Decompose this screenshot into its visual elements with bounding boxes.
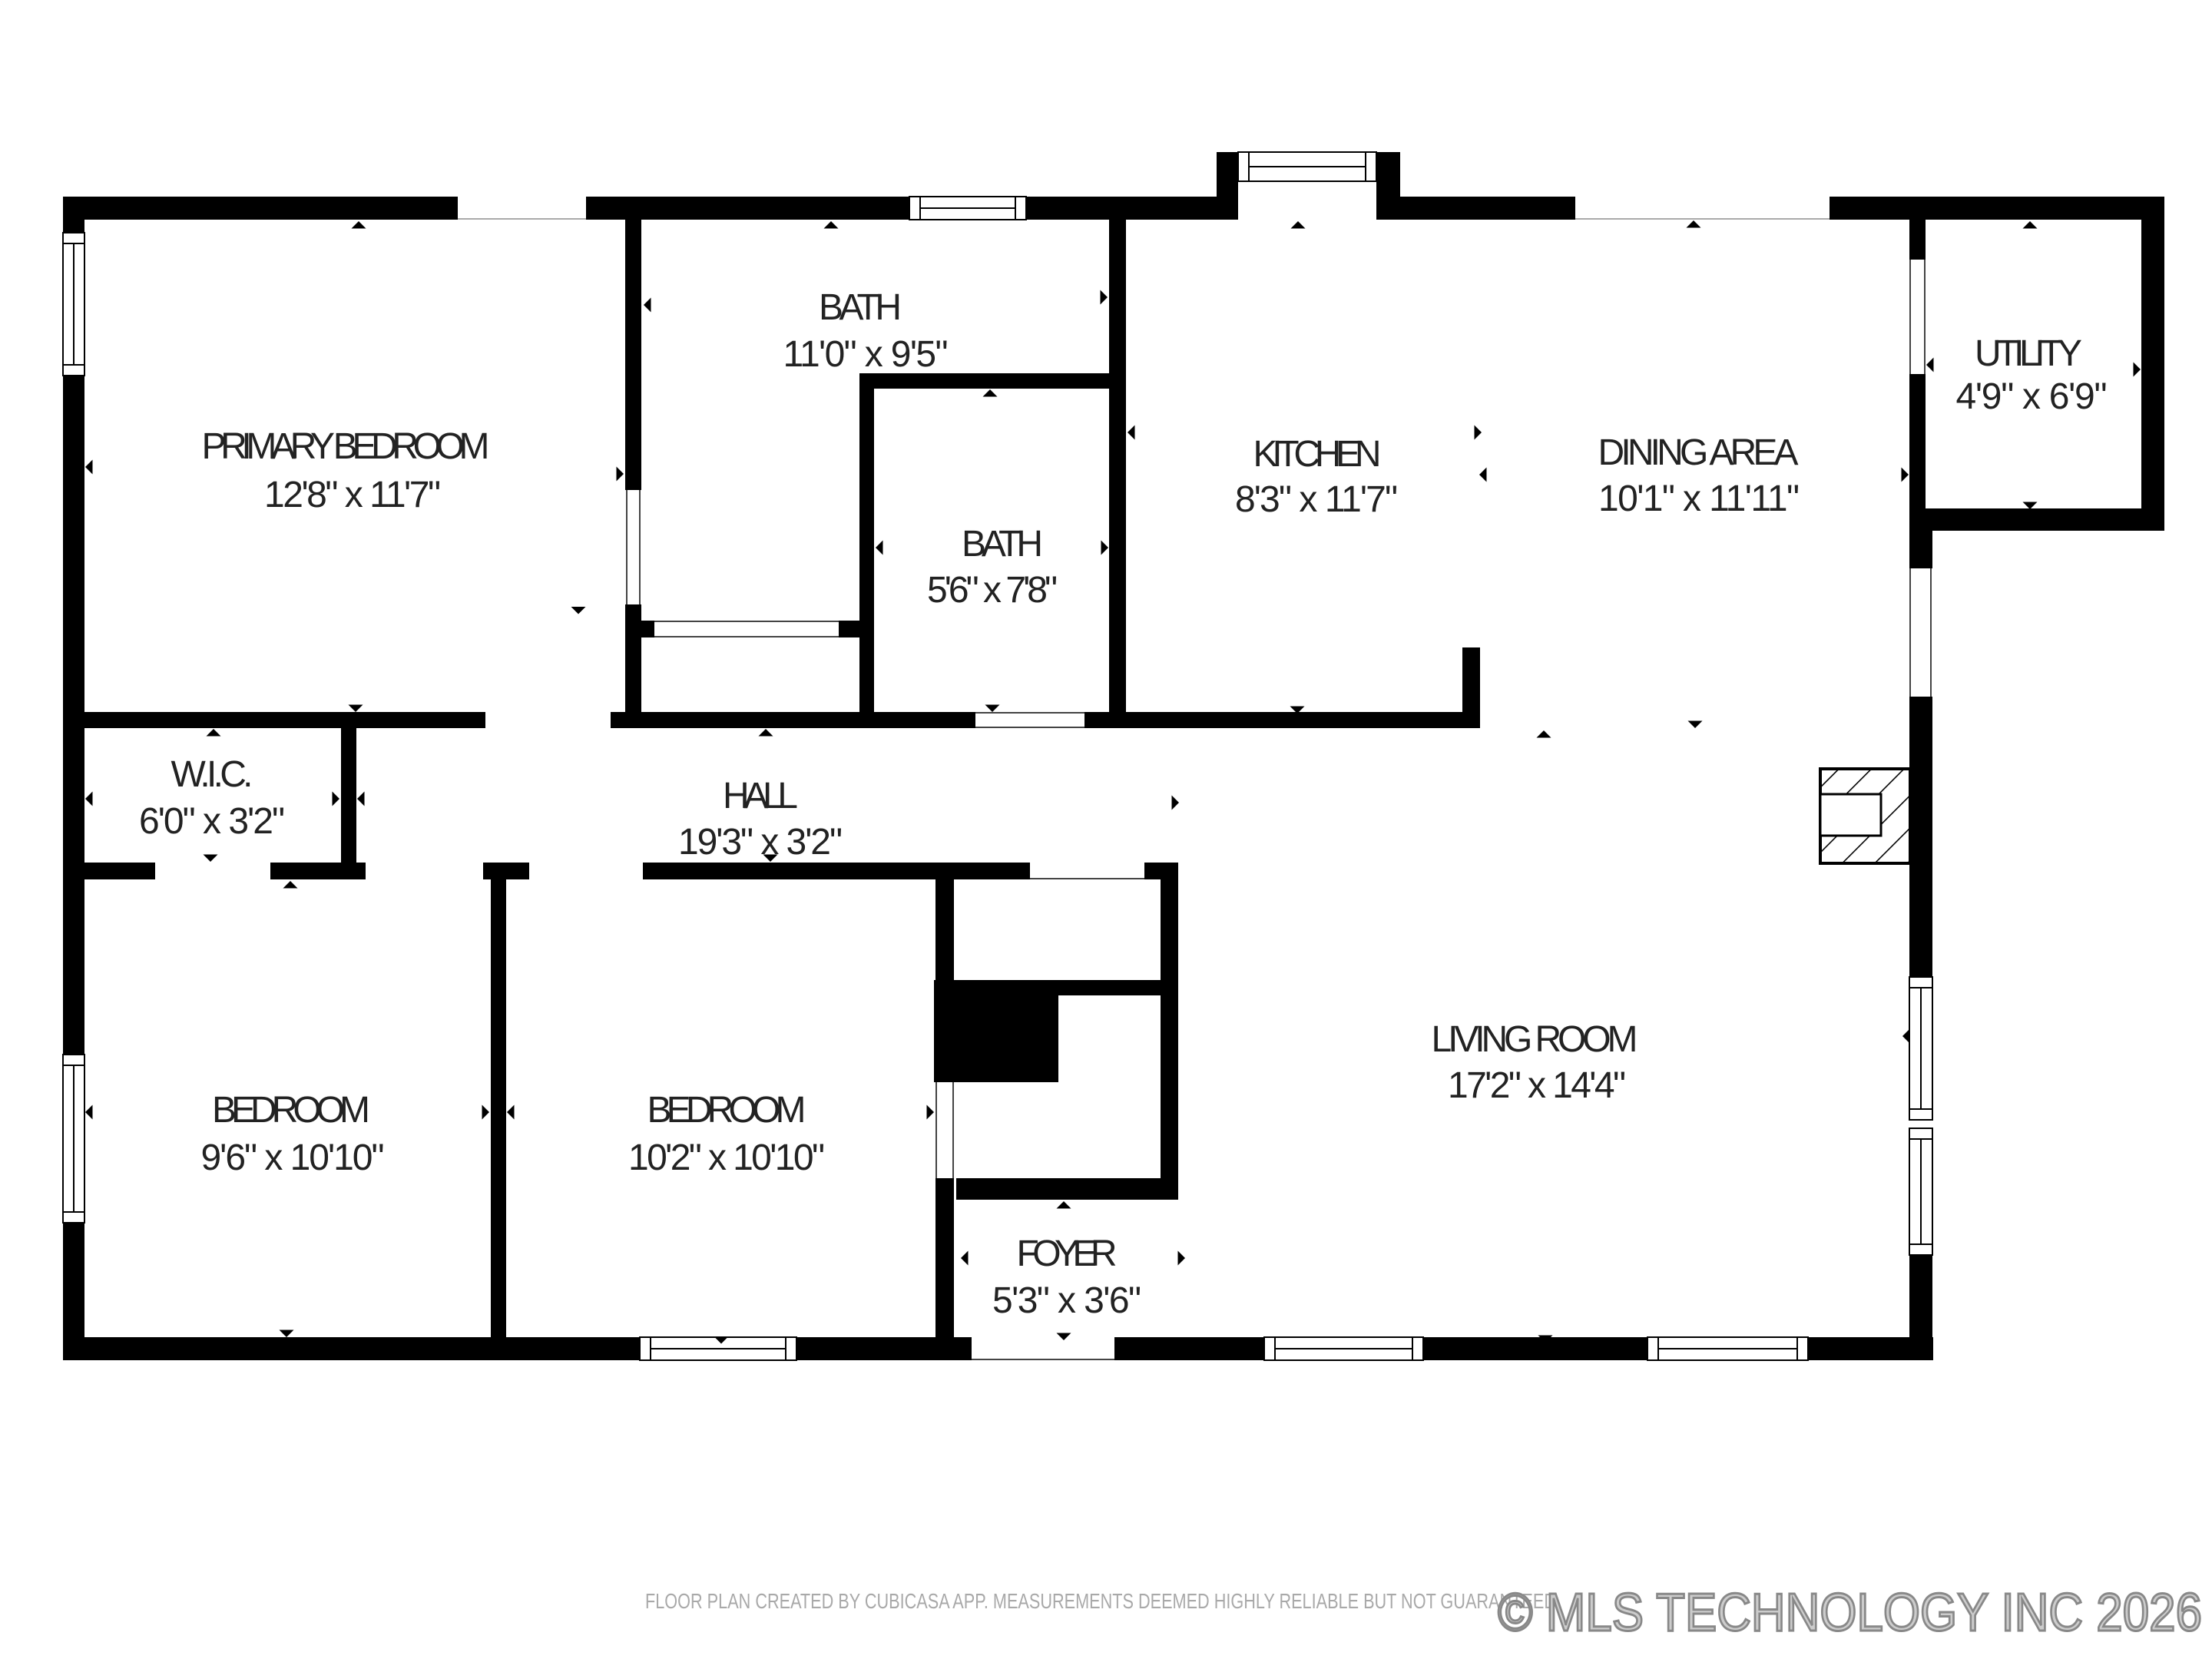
svg-text:BEDROOM: BEDROOM	[647, 1090, 806, 1131]
svg-text:BATH: BATH	[819, 287, 902, 328]
svg-text:UTILITY: UTILITY	[1975, 333, 2082, 374]
svg-text:DINING AREA: DINING AREA	[1598, 432, 1799, 473]
svg-text:FLOOR PLAN CREATED BY CUBICASA: FLOOR PLAN CREATED BY CUBICASA APP. MEAS…	[645, 1589, 1561, 1613]
svg-text:10'1" x 11'11": 10'1" x 11'11"	[1598, 478, 1800, 519]
svg-text:9'6" x 10'10": 9'6" x 10'10"	[201, 1137, 385, 1178]
svg-text:PRIMARY BEDROOM: PRIMARY BEDROOM	[202, 426, 490, 467]
svg-text:19'3" x 3'2": 19'3" x 3'2"	[678, 822, 843, 863]
svg-text:10'2" x 10'10": 10'2" x 10'10"	[628, 1137, 825, 1178]
svg-text:BATH: BATH	[962, 524, 1043, 565]
svg-text:11'0" x 9'5": 11'0" x 9'5"	[783, 334, 949, 375]
svg-text:8'3" x 11'7": 8'3" x 11'7"	[1235, 479, 1398, 520]
svg-text:17'2" x 14'4": 17'2" x 14'4"	[1448, 1065, 1626, 1106]
svg-text:KITCHEN: KITCHEN	[1253, 434, 1382, 475]
svg-text:LIVING ROOM: LIVING ROOM	[1432, 1019, 1638, 1060]
svg-text:12'8" x 11'7": 12'8" x 11'7"	[264, 475, 441, 515]
svg-text:BEDROOM: BEDROOM	[212, 1090, 370, 1131]
svg-text:6'0" x 3'2": 6'0" x 3'2"	[139, 801, 285, 842]
svg-text:© MLS TECHNOLOGY INC 2026: © MLS TECHNOLOGY INC 2026	[1498, 1582, 2202, 1642]
svg-text:5'6" x 7'8": 5'6" x 7'8"	[927, 570, 1058, 611]
svg-text:FOYER: FOYER	[1017, 1233, 1118, 1274]
svg-text:W.I.C.: W.I.C.	[171, 754, 253, 795]
svg-text:4'9" x 6'9": 4'9" x 6'9"	[1956, 376, 2108, 417]
svg-text:5'3" x 3'6": 5'3" x 3'6"	[992, 1280, 1141, 1321]
svg-text:HALL: HALL	[723, 776, 798, 816]
